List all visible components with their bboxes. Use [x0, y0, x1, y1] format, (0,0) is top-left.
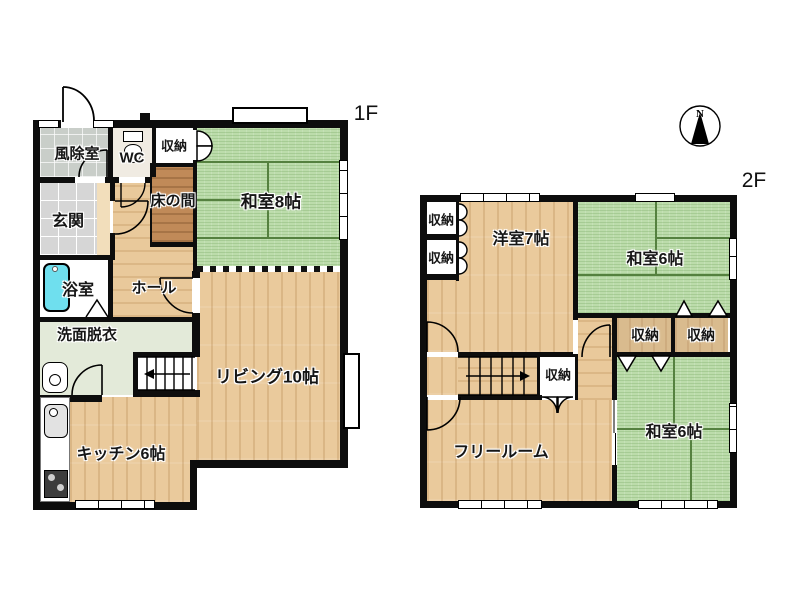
stair-landing-2f — [427, 357, 458, 395]
wall — [578, 313, 737, 318]
wall — [193, 124, 197, 130]
wall — [612, 357, 617, 400]
compass-needle — [691, 112, 709, 144]
door-gap — [61, 120, 94, 128]
wall — [150, 242, 197, 247]
label-floor2: 2F — [742, 169, 767, 193]
label-closet-nw1: 収納 — [428, 210, 454, 229]
window — [93, 120, 114, 128]
label-japanese8: 和室8帖 — [241, 188, 301, 213]
window — [638, 500, 718, 509]
label-hall: ホール — [131, 277, 176, 298]
wall — [613, 352, 737, 357]
window — [339, 160, 348, 240]
label-windbreak: 風除室 — [54, 143, 99, 164]
label-closet-1f: 収納 — [161, 136, 187, 155]
wall — [108, 260, 113, 317]
door-gap — [427, 352, 458, 357]
label-closet-mid-right: 収納 — [687, 325, 715, 345]
wall — [33, 317, 192, 322]
wall — [537, 357, 540, 395]
compass-north-label: N — [696, 108, 704, 120]
label-japanese6-north: 和室6帖 — [627, 245, 684, 269]
window — [460, 193, 540, 202]
wall — [612, 465, 617, 501]
wall — [133, 390, 200, 397]
washbasin-bowl — [49, 374, 61, 386]
stove-burner — [48, 474, 55, 481]
entrance-step — [97, 183, 110, 255]
label-entrance: 玄関 — [52, 207, 84, 231]
window — [729, 238, 737, 280]
wall — [33, 255, 115, 260]
window — [458, 500, 542, 509]
window — [635, 193, 675, 202]
wall — [193, 160, 197, 271]
door-gap — [192, 278, 200, 313]
stairs-2f-floor — [458, 357, 537, 395]
window — [75, 500, 155, 509]
stairs-1f — [138, 357, 195, 390]
label-bath: 浴室 — [62, 276, 94, 300]
wall — [420, 234, 458, 240]
stairs-1f-arrowhead — [144, 369, 154, 379]
door-gap — [573, 320, 578, 354]
label-western7: 洋室7帖 — [493, 225, 550, 249]
wall — [575, 357, 578, 400]
wall — [190, 460, 348, 468]
kitchen-faucet — [49, 408, 58, 417]
stove — [44, 470, 68, 498]
wall — [152, 124, 156, 177]
wall-vent-stub — [140, 113, 150, 121]
wall — [192, 313, 200, 357]
wall — [108, 124, 113, 177]
label-washroom: 洗面脱衣 — [57, 324, 117, 345]
window — [343, 353, 360, 429]
label-closet-stairs: 収納 — [545, 365, 571, 384]
label-freeroom: フリールーム — [453, 438, 549, 462]
door-gap — [75, 177, 105, 183]
label-closet-nw2: 収納 — [428, 248, 454, 267]
stove-burner — [57, 484, 64, 491]
label-floor1: 1F — [354, 102, 379, 126]
wall — [456, 202, 459, 281]
window — [232, 107, 308, 124]
compass: N — [680, 106, 720, 146]
wall — [420, 274, 458, 280]
wall — [192, 271, 200, 278]
sliding-doors-japanese8 — [197, 266, 340, 272]
window — [729, 403, 737, 453]
label-tokonoma: 床の間 — [150, 190, 195, 211]
bathtub-drain — [52, 266, 58, 272]
label-japanese6-south: 和室6帖 — [646, 418, 703, 442]
wall — [110, 183, 115, 201]
label-wc: WC — [120, 150, 145, 167]
room-washroom-ext — [135, 322, 192, 352]
wall — [671, 317, 675, 352]
toilet-tank — [123, 131, 143, 142]
compass-circle — [680, 106, 720, 146]
label-living: リビング10帖 — [215, 363, 319, 388]
tatami-line — [655, 237, 730, 239]
tatami-line — [578, 274, 730, 276]
floorplan: N 風除室 WC 収納 床の間 和室8帖 玄関 浴室 ホール 洗面脱衣 リビング… — [0, 0, 800, 600]
window — [38, 120, 59, 128]
wall — [110, 233, 115, 255]
label-closet-mid-left: 収納 — [631, 325, 659, 345]
wall — [133, 352, 197, 357]
wall — [612, 317, 617, 357]
door-gap — [427, 395, 458, 400]
sliding-door-gap — [612, 400, 617, 465]
door-gap — [119, 177, 145, 183]
entry-door — [63, 87, 94, 122]
room-hallway-2f — [578, 317, 612, 400]
label-kitchen: キッチン6帖 — [77, 440, 166, 464]
wall — [456, 395, 542, 400]
wall — [150, 163, 197, 167]
